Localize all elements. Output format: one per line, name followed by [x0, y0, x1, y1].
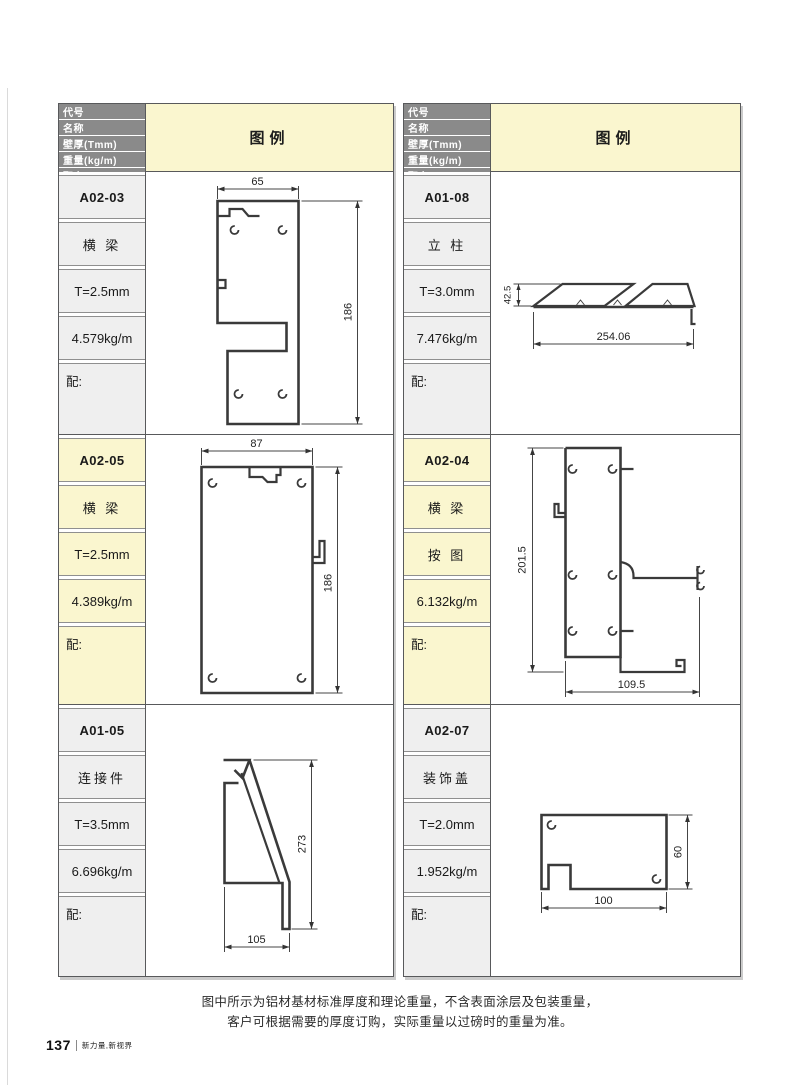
- header-label-weight: 重量(kg/m): [59, 152, 145, 167]
- footer-slogan: 新力量,新视界: [82, 1040, 133, 1051]
- dim-width-label: 65: [251, 176, 263, 188]
- profile-code: A01-05: [59, 708, 145, 752]
- header-label-column: 代号 名称 壁厚(Tmm) 重量(kg/m) 配套: [404, 104, 491, 171]
- profile-name: 横 梁: [59, 222, 145, 266]
- profile-thickness: 按 图: [404, 532, 490, 576]
- header-label-weight: 重量(kg/m): [404, 152, 490, 167]
- dimension-annotations: 201.5 109.5: [517, 448, 700, 697]
- table-header-right: 代号 名称 壁厚(Tmm) 重量(kg/m) 配套 图例: [404, 104, 740, 172]
- profile-thickness: T=2.5mm: [59, 532, 145, 576]
- profile-diagram-a01-08: 42.5 254.06: [491, 172, 740, 434]
- footnote-line1: 图中所示为铝材基材标准厚度和理论重量，不含表面涂层及包装重量，: [0, 992, 800, 1012]
- header-label-name: 名称: [59, 120, 145, 135]
- profile-thickness: T=2.5mm: [59, 269, 145, 313]
- profile-code: A01-08: [404, 175, 490, 219]
- profile-weight: 7.476kg/m: [404, 316, 490, 360]
- profile-drawing-a02-05: 87 186: [146, 435, 393, 704]
- dimension-annotations: 42.5 254.06: [503, 284, 694, 349]
- dim-height-label: 273: [297, 835, 309, 853]
- dim-width-label: 87: [250, 438, 262, 450]
- profile-outline: [555, 448, 705, 672]
- profile-code: A02-07: [404, 708, 490, 752]
- profile-fit: 配:: [404, 896, 490, 976]
- profile-drawing-a01-05: 273 105: [146, 705, 393, 976]
- profile-labels: A02-05 横 梁 T=2.5mm 4.389kg/m 配:: [59, 435, 146, 704]
- profile-code: A02-03: [59, 175, 145, 219]
- profile-thickness: T=2.0mm: [404, 802, 490, 846]
- dim-width-label: 254.06: [597, 331, 631, 343]
- profile-row-a01-08: A01-08 立 柱 T=3.0mm 7.476kg/m 配: 42.5 254…: [404, 172, 740, 435]
- profile-fit: 配:: [59, 896, 145, 976]
- profile-name: 立 柱: [404, 222, 490, 266]
- profile-weight: 1.952kg/m: [404, 849, 490, 893]
- header-label-name: 名称: [404, 120, 490, 135]
- dim-height-label: 60: [673, 846, 685, 858]
- profile-drawing-a01-08: 42.5 254.06: [491, 172, 740, 434]
- profile-fit: 配:: [404, 363, 490, 434]
- page-number: 137: [46, 1037, 71, 1053]
- dim-width-label: 100: [594, 895, 612, 907]
- legend-header: 图例: [146, 104, 393, 171]
- profile-fit: 配:: [404, 626, 490, 704]
- header-label-thickness: 壁厚(Tmm): [404, 136, 490, 151]
- profile-outline: [542, 815, 667, 889]
- profile-weight: 4.579kg/m: [59, 316, 145, 360]
- profile-name: 横 梁: [59, 485, 145, 529]
- profile-labels: A02-04 横 梁 按 图 6.132kg/m 配:: [404, 435, 491, 704]
- profile-outline: [224, 760, 290, 929]
- dim-height-label: 201.5: [517, 546, 529, 574]
- profile-outline: [202, 467, 325, 693]
- profile-thickness: T=3.5mm: [59, 802, 145, 846]
- profile-diagram-a02-04: 201.5 109.5: [491, 435, 740, 704]
- profile-outline: [218, 201, 299, 424]
- profile-diagram-a01-05: 273 105: [146, 705, 393, 976]
- footnote: 图中所示为铝材基材标准厚度和理论重量，不含表面涂层及包装重量， 客户可根据需要的…: [0, 992, 800, 1032]
- profile-code: A02-04: [404, 438, 490, 482]
- header-label-code: 代号: [59, 104, 145, 119]
- profile-drawing-a02-04: 201.5 109.5: [491, 435, 740, 704]
- profile-name: 横 梁: [404, 485, 490, 529]
- footnote-line2: 客户可根据需要的厚度订购，实际重量以过磅时的重量为准。: [0, 1012, 800, 1032]
- profile-code: A02-05: [59, 438, 145, 482]
- header-label-code: 代号: [404, 104, 490, 119]
- profile-name: 装饰盖: [404, 755, 490, 799]
- profile-fit: 配:: [59, 363, 145, 434]
- dim-height-label: 186: [323, 574, 335, 592]
- profile-weight: 6.696kg/m: [59, 849, 145, 893]
- profile-labels: A02-03 横 梁 T=2.5mm 4.579kg/m 配:: [59, 172, 146, 434]
- dim-width-label: 105: [247, 934, 265, 946]
- profile-labels: A01-05 连接件 T=3.5mm 6.696kg/m 配:: [59, 705, 146, 976]
- profile-fit: 配:: [59, 626, 145, 704]
- profile-row-a02-05: A02-05 横 梁 T=2.5mm 4.389kg/m 配: 87 186: [59, 435, 393, 705]
- catalog-page: { "header": { "labels": ["代号", "名称", "壁厚…: [0, 0, 800, 1085]
- dimension-annotations: 87 186: [202, 438, 343, 693]
- profile-diagram-a02-03: 65 186: [146, 172, 393, 434]
- profile-row-a02-03: A02-03 横 梁 T=2.5mm 4.579kg/m 配: 65 186: [59, 172, 393, 435]
- profile-diagram-a02-05: 87 186: [146, 435, 393, 704]
- profile-drawing-a02-03: 65 186: [146, 172, 393, 434]
- dimension-annotations: 65 186: [218, 176, 363, 424]
- catalog-table-left: 代号 名称 壁厚(Tmm) 重量(kg/m) 配套 图例 A02-03 横 梁 …: [58, 103, 394, 977]
- scan-page-edge: [7, 88, 8, 1085]
- legend-header: 图例: [491, 104, 740, 171]
- header-label-thickness: 壁厚(Tmm): [59, 136, 145, 151]
- profile-drawing-a02-07: 100 60: [491, 705, 740, 976]
- profile-row-a02-04: A02-04 横 梁 按 图 6.132kg/m 配: 201.5 109.5: [404, 435, 740, 705]
- dim-height-label: 42.5: [503, 286, 514, 305]
- page-footer: 137 新力量,新视界: [46, 1037, 132, 1053]
- profile-weight: 4.389kg/m: [59, 579, 145, 623]
- profile-row-a01-05: A01-05 连接件 T=3.5mm 6.696kg/m 配: 273 105: [59, 705, 393, 976]
- profile-row-a02-07: A02-07 装饰盖 T=2.0mm 1.952kg/m 配: 100 60: [404, 705, 740, 976]
- table-header-left: 代号 名称 壁厚(Tmm) 重量(kg/m) 配套 图例: [59, 104, 393, 172]
- dim-width-label: 109.5: [618, 679, 646, 691]
- profile-name: 连接件: [59, 755, 145, 799]
- profile-diagram-a02-07: 100 60: [491, 705, 740, 976]
- header-label-column: 代号 名称 壁厚(Tmm) 重量(kg/m) 配套: [59, 104, 146, 171]
- dim-height-label: 186: [343, 303, 355, 321]
- profile-labels: A02-07 装饰盖 T=2.0mm 1.952kg/m 配:: [404, 705, 491, 976]
- profile-outline: [534, 284, 696, 324]
- profile-thickness: T=3.0mm: [404, 269, 490, 313]
- catalog-table-right: 代号 名称 壁厚(Tmm) 重量(kg/m) 配套 图例 A01-08 立 柱 …: [403, 103, 741, 977]
- profile-labels: A01-08 立 柱 T=3.0mm 7.476kg/m 配:: [404, 172, 491, 434]
- profile-weight: 6.132kg/m: [404, 579, 490, 623]
- footer-divider: [76, 1040, 77, 1051]
